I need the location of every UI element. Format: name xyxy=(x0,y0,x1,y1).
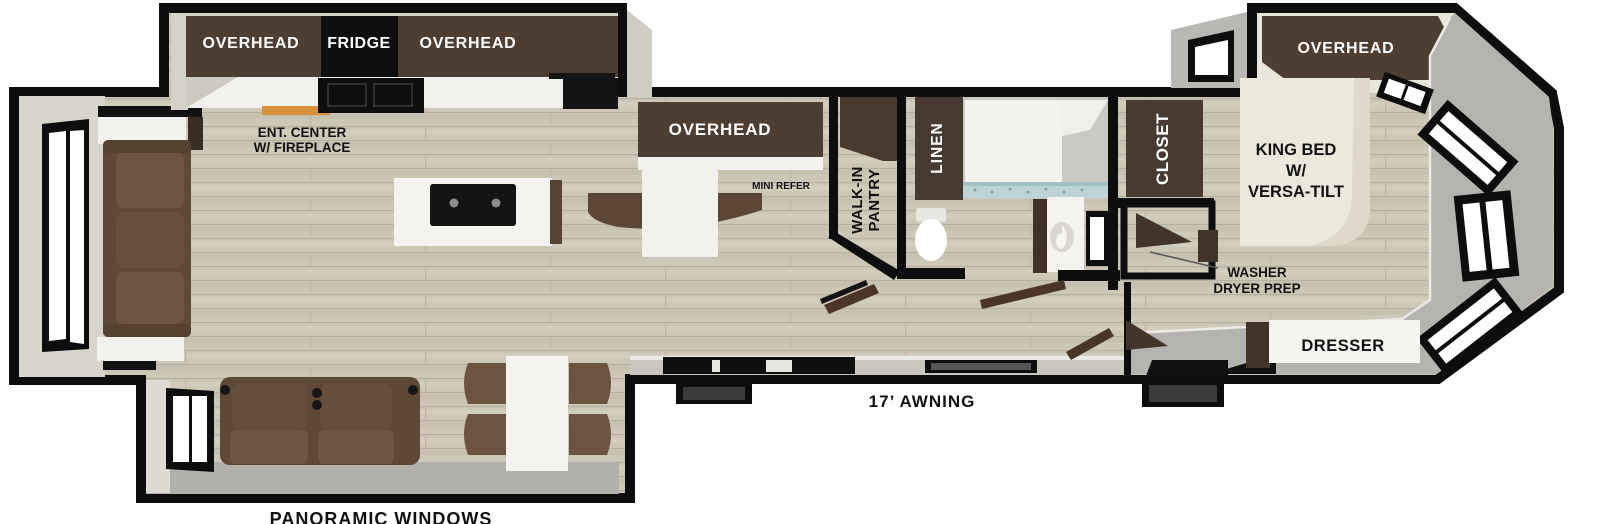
svg-text:OVERHEAD: OVERHEAD xyxy=(419,35,516,52)
svg-text:OVERHEAD: OVERHEAD xyxy=(1297,40,1394,57)
svg-text:PANTRY: PANTRY xyxy=(866,169,883,232)
svg-text:MINI REFER: MINI REFER xyxy=(752,181,811,192)
svg-text:DRYER PREP: DRYER PREP xyxy=(1213,281,1300,296)
svg-text:W/: W/ xyxy=(1286,162,1307,180)
svg-text:WALK-IN: WALK-IN xyxy=(849,166,866,234)
svg-text:KING BED: KING BED xyxy=(1256,141,1337,159)
svg-text:W/ FIREPLACE: W/ FIREPLACE xyxy=(254,140,351,155)
svg-text:PANORAMIC WINDOWS: PANORAMIC WINDOWS xyxy=(270,509,493,524)
svg-text:17’ AWNING: 17’ AWNING xyxy=(869,392,976,411)
svg-text:WASHER: WASHER xyxy=(1227,265,1287,280)
svg-text:LINEN: LINEN xyxy=(929,122,946,174)
svg-text:VERSA-TILT: VERSA-TILT xyxy=(1248,183,1344,201)
svg-text:CLOSET: CLOSET xyxy=(1153,113,1172,185)
svg-text:OVERHEAD: OVERHEAD xyxy=(202,35,299,52)
svg-text:FRIDGE: FRIDGE xyxy=(327,35,390,52)
svg-text:OVERHEAD: OVERHEAD xyxy=(669,120,772,139)
svg-text:DRESSER: DRESSER xyxy=(1301,337,1384,355)
svg-text:ENT. CENTER: ENT. CENTER xyxy=(258,125,347,140)
